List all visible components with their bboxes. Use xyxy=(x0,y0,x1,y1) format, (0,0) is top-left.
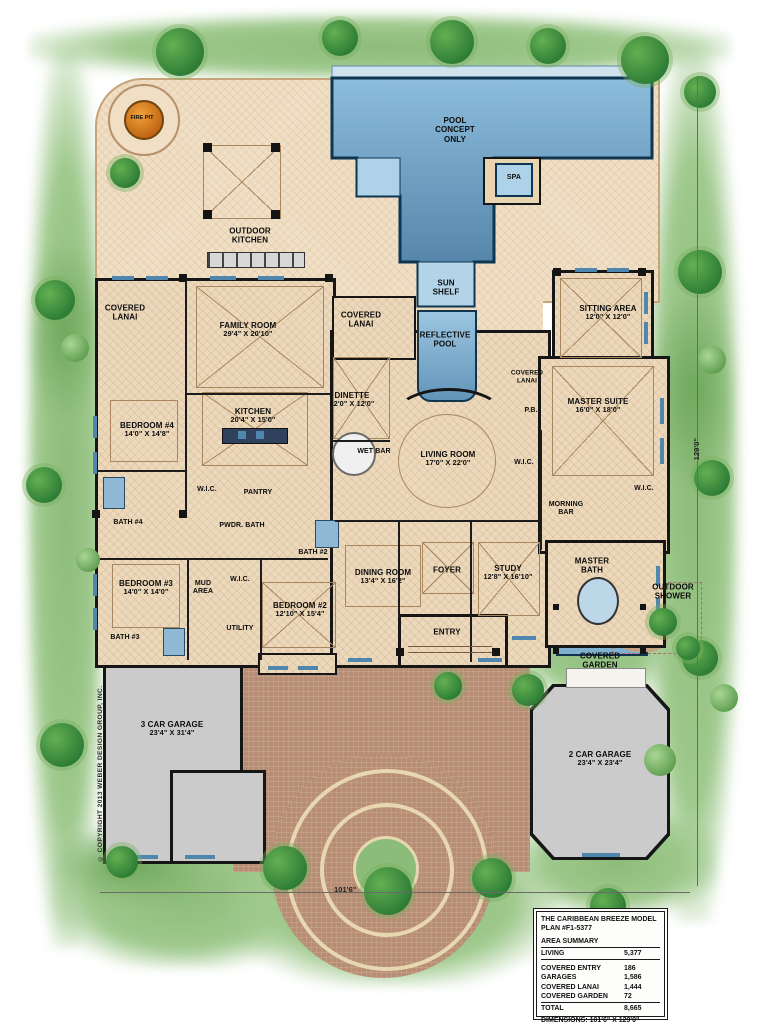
room-label-2-car-garage: 2 CAR GARAGE23'4" X 23'4" xyxy=(569,750,632,768)
window-marker xyxy=(478,658,502,662)
room-label-covered-garden: COVERED GARDEN xyxy=(573,652,627,671)
ceiling-tray xyxy=(552,366,654,476)
room-label-covered-lanai-small: COVERED LANAI xyxy=(505,369,549,384)
room-label-sun-shelf: SUN SHELF xyxy=(429,279,463,298)
room-name: COVERED GARDEN xyxy=(573,652,627,671)
room-label-master-bath: MASTER BATH xyxy=(568,557,616,576)
palm-tree-icon xyxy=(694,460,730,496)
room-name: PANTRY xyxy=(244,489,273,497)
area-label: TOTAL xyxy=(541,1004,564,1013)
pool-infinity-edge xyxy=(332,66,652,78)
room-label-spa: SPA xyxy=(507,174,521,182)
room-name: W.I.C. xyxy=(514,459,534,467)
window-marker xyxy=(112,276,134,280)
room-dims: 14'0" X 14'8" xyxy=(120,430,174,439)
palm-tree-icon xyxy=(26,467,62,503)
garage-patch xyxy=(174,774,234,854)
room-label-mud-area: MUD AREA xyxy=(187,580,219,597)
room-dims: 12'8" X 16'10" xyxy=(483,573,532,582)
room-name: BATH #2 xyxy=(298,549,328,557)
room-name: COVERED LANAI xyxy=(99,304,151,323)
area-row: GARAGES 1,586 xyxy=(541,973,660,982)
garage-door xyxy=(582,853,620,857)
wall-line xyxy=(540,430,542,550)
bush-icon xyxy=(710,684,738,712)
bedroom2-porch xyxy=(258,653,337,675)
room-dims: 12'10" X 15'4" xyxy=(273,610,327,619)
window-marker xyxy=(575,268,597,272)
pergola-post xyxy=(271,210,280,219)
palm-tree-icon xyxy=(530,28,566,64)
pergola-post xyxy=(203,143,212,152)
room-name: W.I.C. xyxy=(634,485,654,493)
room-dims: 12'0" X 12'0" xyxy=(330,400,375,409)
column-post xyxy=(92,510,100,518)
room-name: ENTRY xyxy=(433,627,460,636)
area-value: 8,665 xyxy=(624,1004,660,1013)
column-post xyxy=(492,648,500,656)
room-label-outdoor-shower: OUTDOOR SHOWER xyxy=(644,583,702,602)
window-marker xyxy=(298,666,318,670)
room-name: MASTER BATH xyxy=(568,557,616,576)
wall-line xyxy=(335,520,540,522)
palm-tree-icon xyxy=(364,867,412,915)
palm-tree-icon xyxy=(649,608,677,636)
palm-tree-icon xyxy=(156,28,204,76)
room-label-covered-lanai-right: COVERED LANAI xyxy=(335,311,387,330)
window-marker xyxy=(210,276,236,280)
shower-bath2 xyxy=(315,520,339,548)
area-value: 1,444 xyxy=(624,983,660,992)
pergola-post xyxy=(203,210,212,219)
title-block: THE CARIBBEAN BREEZE MODEL PLAN #F1-5377… xyxy=(533,908,668,1020)
room-name: BATH #3 xyxy=(110,634,139,642)
room-label-study: STUDY12'8" X 16'10" xyxy=(483,564,532,582)
room-label-reflective-pool: REFLECTIVE POOL xyxy=(414,331,476,350)
room-name: WET BAR xyxy=(357,448,390,456)
bush-icon xyxy=(644,744,676,776)
palm-tree-icon xyxy=(434,672,462,700)
wall-line xyxy=(185,281,187,517)
room-label-pb: P.B. xyxy=(524,407,537,415)
bush-icon xyxy=(76,548,100,572)
column-post xyxy=(325,274,333,282)
garden-post xyxy=(553,648,559,654)
kitchen-sink xyxy=(238,431,246,439)
dimension-label-right: 129'0" xyxy=(692,438,701,460)
floor-plan-canvas: POOL CONCEPT ONLY SPA SUN SHELF REFLECTI… xyxy=(0,0,757,1024)
window-marker xyxy=(644,292,648,314)
palm-tree-icon xyxy=(35,280,75,320)
landscape-shade xyxy=(28,246,102,416)
column-post xyxy=(638,268,646,276)
area-value: 5,377 xyxy=(624,949,660,958)
room-label-bedroom3: BEDROOM #314'0" X 14'0" xyxy=(119,579,173,597)
window-marker xyxy=(644,322,648,344)
room-label-wic-bed2: W.I.C. xyxy=(230,576,250,584)
room-dims: 29'4" X 20'10" xyxy=(220,330,277,339)
window-marker xyxy=(512,636,536,640)
room-name: OUTDOOR KITCHEN xyxy=(222,227,278,246)
wall-line xyxy=(187,560,189,660)
room-name: P.B. xyxy=(524,407,537,415)
wall-line xyxy=(470,522,472,662)
room-label-master-suite: MASTER SUITE16'0" X 18'0" xyxy=(568,397,629,415)
room-label-bedroom2: BEDROOM #212'10" X 15'4" xyxy=(273,601,327,619)
garden-post xyxy=(553,604,559,610)
entry-steps xyxy=(408,652,492,653)
master-bath-tub xyxy=(577,577,619,625)
window-marker xyxy=(660,438,664,464)
window-marker xyxy=(146,276,168,280)
room-dims: 13'4" X 16'2" xyxy=(354,577,412,586)
garden-post xyxy=(640,604,646,610)
divider xyxy=(541,1002,660,1003)
window-marker xyxy=(93,574,97,596)
room-label-sitting-area: SITTING AREA12'0" X 12'0" xyxy=(579,304,636,322)
area-row: COVERED LANAI 1,444 xyxy=(541,983,660,992)
palm-tree-icon xyxy=(684,76,716,108)
room-name: REFLECTIVE POOL xyxy=(414,331,476,350)
area-row: COVERED ENTRY 186 xyxy=(541,964,660,973)
palm-tree-icon xyxy=(621,36,669,84)
window-marker xyxy=(348,658,372,662)
room-label-bath4: BATH #4 xyxy=(113,519,143,527)
room-label-kitchen: KITCHEN20'4" X 15'0" xyxy=(231,407,276,425)
room-label-pool: POOL CONCEPT ONLY xyxy=(426,116,484,144)
room-name: PWDR. BATH xyxy=(219,522,264,530)
wall-line xyxy=(260,560,262,660)
room-dims: 17'0" X 22'0" xyxy=(421,459,476,468)
wall-line xyxy=(185,393,330,395)
window-marker xyxy=(258,276,284,280)
wall-line xyxy=(97,470,185,472)
room-label-utility: UTILITY xyxy=(226,625,253,633)
room-label-wet-bar: WET BAR xyxy=(357,448,390,456)
room-label-wic-bed4: W.I.C. xyxy=(197,486,217,494)
room-label-fire-pit: FIRE PIT xyxy=(129,115,155,121)
pergola xyxy=(203,145,281,219)
room-dims: 20'4" X 15'0" xyxy=(231,416,276,425)
kitchen-sink xyxy=(256,431,264,439)
outdoor-kitchen-counter xyxy=(207,252,305,268)
column-post xyxy=(396,648,404,656)
area-summary-heading: AREA SUMMARY xyxy=(541,937,660,946)
area-value: 186 xyxy=(624,964,660,973)
room-name: MUD AREA xyxy=(187,580,219,597)
room-label-bedroom4: BEDROOM #414'0" X 14'8" xyxy=(120,421,174,439)
divider xyxy=(541,959,660,960)
window-marker xyxy=(93,452,97,474)
dimension-label-bottom: 101'6" xyxy=(334,885,356,894)
shower-bath4 xyxy=(103,477,125,509)
palm-tree-icon xyxy=(322,20,358,56)
wall-line xyxy=(97,558,328,560)
room-name: W.I.C. xyxy=(197,486,217,494)
palm-tree-icon xyxy=(430,20,474,64)
area-row: COVERED GARDEN 72 xyxy=(541,992,660,1001)
room-label-living-room: LIVING ROOM17'0" X 22'0" xyxy=(421,450,476,468)
room-label-wic-master-right: W.I.C. xyxy=(634,485,654,493)
title-block-inner: THE CARIBBEAN BREEZE MODEL PLAN #F1-5377… xyxy=(536,911,665,1017)
room-name: FOYER xyxy=(433,565,461,574)
column-post xyxy=(179,274,187,282)
plan-title: THE CARIBBEAN BREEZE MODEL xyxy=(541,915,660,924)
room-name: COVERED LANAI xyxy=(335,311,387,330)
palm-tree-icon xyxy=(40,723,84,767)
window-marker xyxy=(607,268,629,272)
room-dims: 23'4" X 31'4" xyxy=(141,729,204,738)
room-label-wic-master-left: W.I.C. xyxy=(514,459,534,467)
room-label-bath3: BATH #3 xyxy=(110,634,139,642)
pool-steps xyxy=(357,158,400,196)
column-post xyxy=(179,510,187,518)
room-name: BATH #4 xyxy=(113,519,143,527)
area-label: COVERED LANAI xyxy=(541,983,599,992)
pergola-post xyxy=(271,143,280,152)
room-name: FIRE PIT xyxy=(131,115,154,121)
window-marker xyxy=(93,608,97,630)
area-label: GARAGES xyxy=(541,973,576,982)
room-name: MORNING BAR xyxy=(543,501,589,518)
room-name: W.I.C. xyxy=(230,576,250,584)
room-dims: 12'0" X 12'0" xyxy=(579,313,636,322)
window-marker xyxy=(660,398,664,424)
room-name: SPA xyxy=(507,174,521,182)
two-car-garage-floor xyxy=(533,687,667,857)
palm-tree-icon xyxy=(110,158,140,188)
bush-icon xyxy=(61,334,89,362)
area-label: COVERED GARDEN xyxy=(541,992,608,1001)
area-row-living: LIVING 5,377 xyxy=(541,949,660,958)
bush-icon xyxy=(698,346,726,374)
divider xyxy=(541,947,660,948)
copyright-text: © COPYRIGHT 2013 WEBER DESIGN GROUP, INC… xyxy=(97,642,104,862)
room-label-outdoor-kitchen: OUTDOOR KITCHEN xyxy=(222,227,278,246)
area-value: 72 xyxy=(624,992,660,1001)
room-label-pantry: PANTRY xyxy=(244,489,273,497)
dimension-line-bottom xyxy=(100,892,690,893)
room-dims: 14'0" X 14'0" xyxy=(119,588,173,597)
area-row-total: TOTAL 8,665 xyxy=(541,1004,660,1013)
garden-trellis xyxy=(566,668,646,688)
room-dims: 23'4" X 23'4" xyxy=(569,759,632,768)
column-post xyxy=(553,268,561,276)
curved-gallery-wall xyxy=(396,388,502,438)
room-name: UTILITY xyxy=(226,625,253,633)
room-label-covered-lanai-left: COVERED LANAI xyxy=(99,304,151,323)
area-value: 1,586 xyxy=(624,973,660,982)
window-marker xyxy=(268,666,288,670)
palm-tree-icon xyxy=(263,846,307,890)
room-label-pwdr-bath: PWDR. BATH xyxy=(219,522,264,530)
area-label: LIVING xyxy=(541,949,564,958)
wall-line xyxy=(330,440,390,442)
kitchen-island xyxy=(222,428,288,444)
room-name: COVERED LANAI xyxy=(505,369,549,384)
window-marker xyxy=(93,416,97,438)
room-name: SUN SHELF xyxy=(429,279,463,298)
palm-tree-icon xyxy=(106,846,138,878)
entry-steps xyxy=(408,646,492,647)
room-label-bath2: BATH #2 xyxy=(298,549,328,557)
overall-dimensions: DIMENSIONS: 101'6" X 129'0" xyxy=(541,1016,660,1024)
room-label-dinette: DINETTE12'0" X 12'0" xyxy=(330,391,375,409)
area-label: COVERED ENTRY xyxy=(541,964,601,973)
garden-post xyxy=(640,648,646,654)
shower-bath3 xyxy=(163,628,185,656)
room-label-morning-bar: MORNING BAR xyxy=(543,501,589,518)
room-name: POOL CONCEPT ONLY xyxy=(426,116,484,144)
room-label-3-car-garage: 3 CAR GARAGE23'4" X 31'4" xyxy=(141,720,204,738)
dimension-line-right xyxy=(697,76,698,886)
room-label-foyer: FOYER xyxy=(433,565,461,574)
plan-number: PLAN #F1-5377 xyxy=(541,924,660,933)
garage-door xyxy=(185,855,215,859)
room-label-entry: ENTRY xyxy=(433,627,460,636)
palm-tree-icon xyxy=(678,250,722,294)
palm-tree-icon xyxy=(512,674,544,706)
room-dims: 16'0" X 18'0" xyxy=(568,406,629,415)
room-label-family-room: FAMILY ROOM29'4" X 20'10" xyxy=(220,321,277,339)
room-name: OUTDOOR SHOWER xyxy=(644,583,702,602)
room-label-dining-room: DINING ROOM13'4" X 16'2" xyxy=(354,568,412,586)
